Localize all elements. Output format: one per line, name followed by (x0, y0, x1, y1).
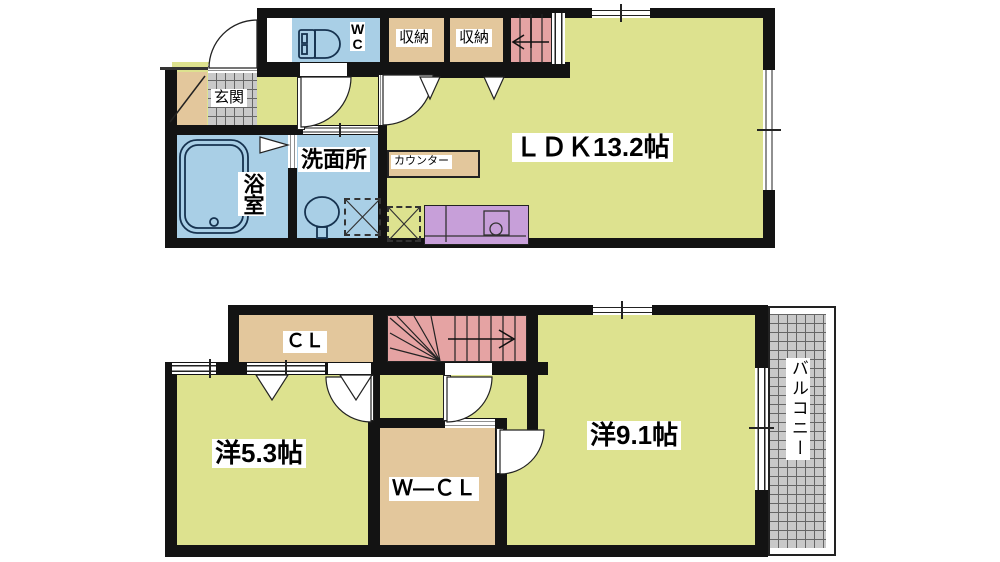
wall (228, 305, 768, 315)
door-opening-ldk (379, 75, 386, 125)
label-wc-c: C (353, 37, 363, 52)
label-ldk: ＬＤＫ13.2帖 (512, 133, 673, 162)
label-bath: 浴室 (238, 172, 266, 216)
stairs-2f (387, 315, 527, 362)
room-wc (292, 18, 382, 64)
window-balcony (755, 368, 768, 490)
kitchen-unit (424, 205, 529, 245)
window-tick (620, 4, 622, 22)
wall (165, 362, 177, 557)
wall (527, 305, 538, 430)
wall (503, 8, 511, 64)
niche-1f (267, 18, 292, 64)
window-tick (621, 301, 623, 319)
label-wcl: Ｗ―ＣＬ (389, 477, 479, 501)
entrance-threshold (208, 64, 257, 73)
outside-notch-1f (140, 0, 257, 62)
door-tick (339, 123, 341, 137)
label-room53: 洋5.3帖 (212, 439, 306, 468)
stairs-1f (509, 13, 552, 64)
wall (288, 168, 297, 238)
door-leaf-wc (297, 77, 305, 130)
floorplan-canvas: W C 収納 収納 玄関 浴室 洗面所 カウンター ＬＤＫ13.2帖 (0, 0, 1000, 562)
room-bath (173, 135, 288, 238)
door-bath (288, 135, 297, 168)
wall (165, 545, 768, 557)
outside-notch-2f (150, 295, 228, 362)
wall (385, 62, 570, 78)
label-wc: W C (350, 22, 365, 51)
door-leaf-53 (366, 375, 374, 421)
wall (373, 305, 387, 375)
label-room91: 洋9.1帖 (587, 421, 681, 450)
wall (165, 70, 177, 248)
stair-rail-1f (552, 13, 565, 64)
wall (444, 8, 450, 62)
refrigerator-area (387, 206, 421, 242)
label-storage-1: 収納 (396, 29, 432, 47)
label-storage-2: 収納 (456, 29, 492, 47)
window-tick (749, 427, 774, 429)
door-leaf-hall (443, 375, 451, 421)
wall (380, 8, 389, 62)
door-leaf-91 (496, 428, 504, 474)
door-opening-hall (445, 363, 492, 375)
wall (257, 8, 775, 18)
window-tick (757, 129, 781, 131)
door-wcl-sliding (445, 419, 495, 428)
label-cl: ＣＬ (283, 331, 327, 353)
door-opening-wc (300, 63, 347, 76)
door-opening-53 (328, 363, 371, 374)
label-washroom: 洗面所 (298, 147, 370, 172)
label-wc-w: W (351, 22, 364, 37)
door-tick (285, 360, 287, 376)
label-counter: カウンター (391, 155, 452, 169)
label-genkan: 玄関 (211, 89, 247, 107)
washer-area (344, 198, 381, 236)
porch-edge (160, 67, 208, 70)
window-tick (209, 359, 211, 378)
label-balcony: バルコニー (786, 358, 810, 460)
